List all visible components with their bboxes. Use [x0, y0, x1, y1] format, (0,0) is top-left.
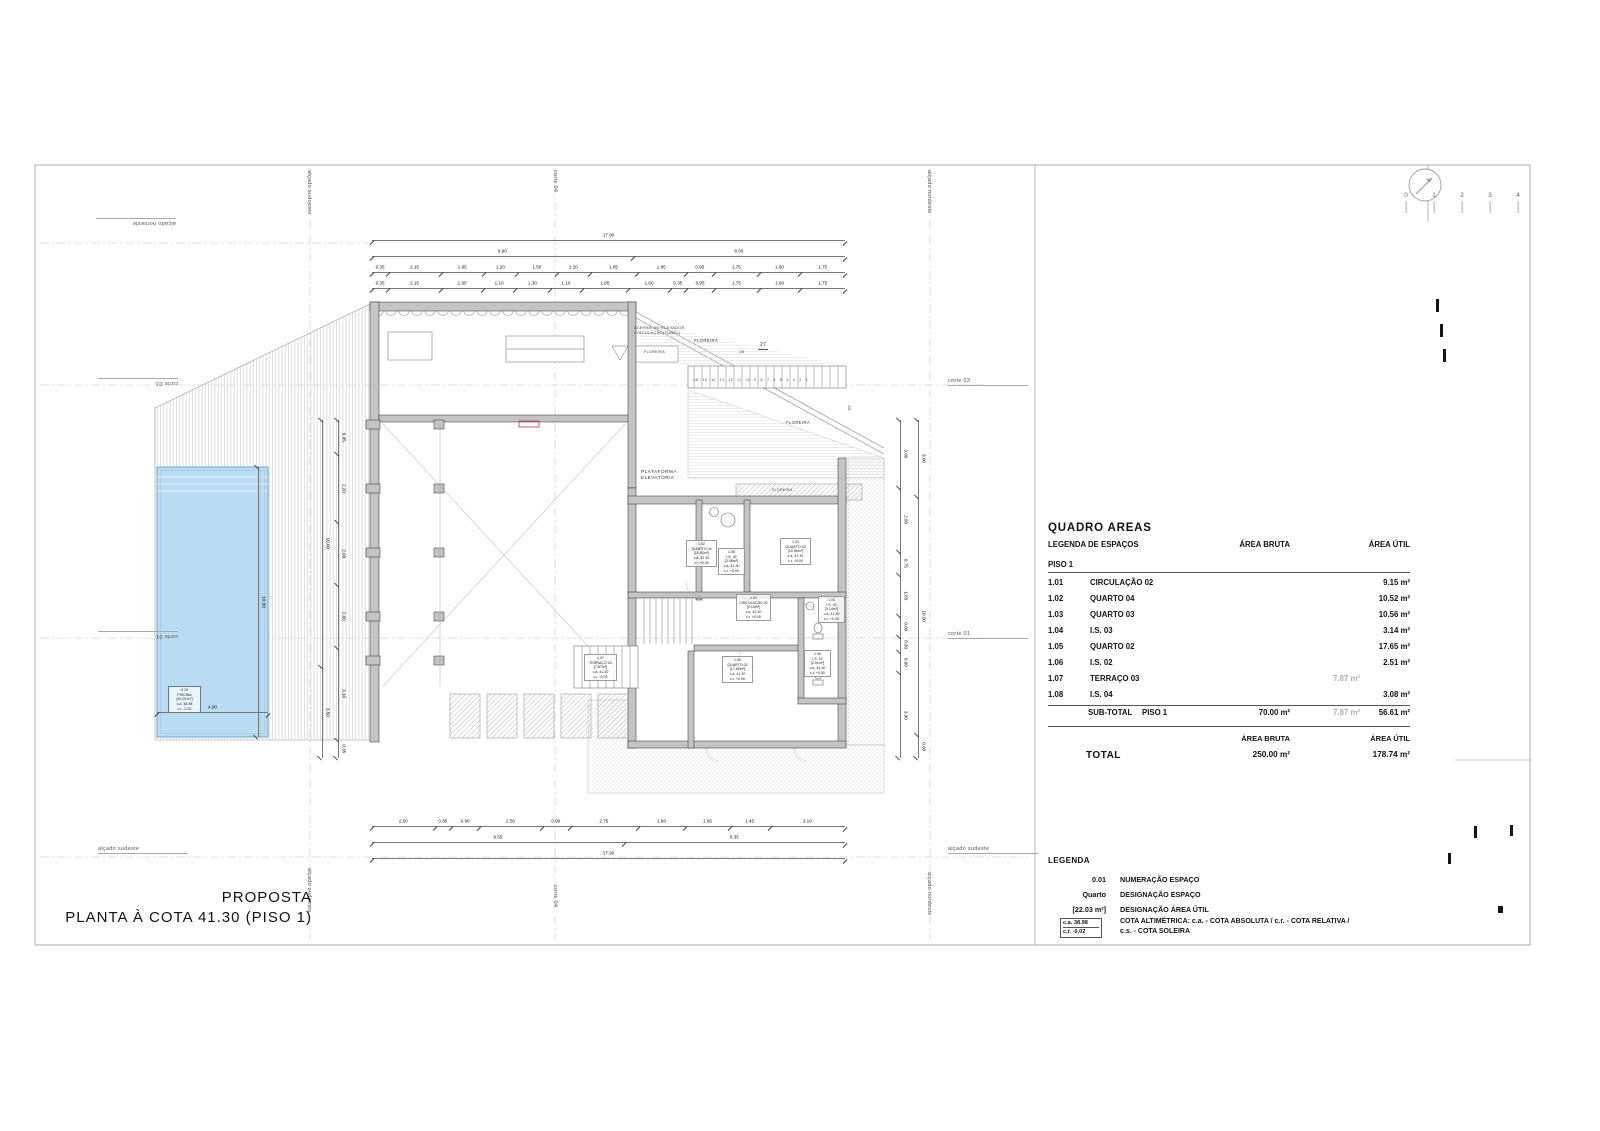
- cell-num: 1.06: [1048, 658, 1090, 667]
- cell-num: 1.04: [1048, 626, 1090, 635]
- dim-segment: 2.20: [338, 454, 344, 522]
- tread-depth-label-1: .25: [738, 349, 745, 354]
- floreira-label-4: FLOREIRA: [772, 488, 793, 493]
- room-label-quarto04: 1.02 QUARTO 04 [10.52m²] c.a. 41.30 c.r.…: [686, 540, 717, 567]
- dim-segment: 1.75: [714, 283, 759, 289]
- subtotal-floor: PISO 1: [1142, 708, 1167, 717]
- dim-chain-top-halves: 9.908.00: [372, 249, 845, 257]
- dim-segment: 1.10: [483, 283, 514, 289]
- dim-segment: 3.50: [322, 667, 328, 758]
- cell-num: 1.02: [1048, 594, 1090, 603]
- interior-stair: [644, 598, 692, 644]
- legend-key: Quarto: [1048, 890, 1106, 899]
- table-row: 1.04 I.S. 03 3.14 m²: [1048, 622, 1410, 638]
- table-row: 1.02 QUARTO 04 10.52 m²: [1048, 590, 1410, 606]
- cell-label: QUARTO 02: [1090, 642, 1208, 651]
- cell-num: 1.08: [1048, 690, 1090, 699]
- dim-chain-bottom-overall: 17.90: [372, 851, 845, 859]
- areas-table-header: LEGENDA DE ESPAÇOS ÁREA BRUTA ÁREA ÚTIL: [1048, 540, 1410, 552]
- dim-segment: 0.60: [900, 616, 906, 637]
- table-row: 1.05 QUARTO 02 17.65 m²: [1048, 638, 1410, 654]
- col-header-espacos: LEGENDA DE ESPAÇOS: [1048, 540, 1139, 549]
- dim-segment: 17.90: [372, 853, 845, 859]
- dim-segment: 0.30: [900, 637, 906, 652]
- cell-util: 3.08 m²: [1360, 690, 1410, 699]
- col-header-util: ÁREA ÚTIL: [1369, 540, 1410, 549]
- legend-desc: NUMERAÇÃO ESPAÇO: [1120, 875, 1418, 884]
- dim-segment: 10.00: [258, 467, 264, 737]
- dim-chain-top-segments-2: 0.352.151.651.101.301.101.851.600.350.95…: [372, 281, 845, 289]
- subtotal-row: SUB-TOTAL PISO 1 70.00 m² 7.87 m² 56.61 …: [1048, 708, 1410, 722]
- table-row: 1.03 QUARTO 03 10.56 m²: [1048, 606, 1410, 622]
- cell-label: I.S. 03: [1090, 626, 1208, 635]
- dim-segment: 0.90: [542, 821, 570, 827]
- cell-util: 10.56 m²: [1360, 610, 1410, 619]
- edge-label-nordeste-bottom: alçado nordeste: [926, 872, 932, 916]
- dim-segment: 1.65: [441, 283, 484, 289]
- dim-chain-top-overall: 17.90: [372, 233, 845, 241]
- edge-label-sudoeste-top: alçado sudoeste: [306, 170, 312, 215]
- stair-riser-count: 27: [758, 342, 768, 350]
- scale-tick: [1490, 201, 1491, 213]
- dim-segment: 1.80: [638, 821, 686, 827]
- room-label-is02: 1.06 I.S. 02 [2.51m²] c.a. 41.30 c.r. +0…: [804, 650, 831, 677]
- cell-label: QUARTO 04: [1090, 594, 1208, 603]
- plataforma-label: PLATAFORMA ELEVATÓRIA: [641, 470, 677, 482]
- table-row: 1.06 I.S. 02 2.51 m²: [1048, 654, 1410, 670]
- dim-segment: 0.35: [670, 283, 686, 289]
- dim-segment: 1.85: [582, 283, 629, 289]
- cota-absoluta-sample: c.a. 38.98: [1063, 919, 1099, 928]
- total-util: 178.74 m²: [1373, 750, 1410, 759]
- tread-depth-label-2: .25: [847, 404, 852, 411]
- dim-segment: 0.35: [435, 821, 451, 827]
- dim-chain-right-outer: 3.0010.000.60: [918, 420, 926, 758]
- dim-segment: 1.75: [800, 267, 845, 273]
- dim-segment: 1.60: [628, 283, 670, 289]
- dim-segment: 0.35: [372, 283, 388, 289]
- room-label-is03: 1.04 I.S. 03 [3.14m²] c.a. 41.30 c.r. +0…: [818, 596, 845, 623]
- room-label-circulacao02: 1.01 CIRCULAÇÃO 02 [9.15m²] c.a. 41.30 c…: [736, 594, 771, 621]
- dim-segment: 0.35: [338, 740, 344, 758]
- fold-marks: [1436, 299, 1513, 913]
- cota-description: COTA ALTIMÉTRICA: c.a. - COTA ABSOLUTA /…: [1120, 917, 1349, 937]
- floor-plan-svg: [0, 0, 1600, 1131]
- dim-segment: 8.35: [624, 837, 845, 843]
- exterior-stair: [688, 366, 846, 388]
- cell-num: 1.05: [1048, 642, 1090, 651]
- scale-tick: [1434, 201, 1435, 213]
- cell-label: QUARTO 03: [1090, 610, 1208, 619]
- acesso-elevador-label: ACESSO AO ELEVADOR CIRCULAÇÃO(TÚNEL): [634, 326, 685, 336]
- cell-gray: 7.87 m²: [1290, 674, 1360, 683]
- edge-label-nordeste-top: alçado nordeste: [926, 170, 932, 214]
- dim-segment: 2.80: [900, 488, 906, 552]
- dim-segment: 10.00: [322, 420, 328, 667]
- edge-label-corte04-bottom: corte 04: [552, 885, 558, 907]
- legend-desc: DESIGNAÇÃO ÁREA ÚTIL: [1120, 905, 1418, 914]
- legend-row: Quarto DESIGNAÇÃO ESPAÇO: [1048, 887, 1418, 902]
- cell-util: 10.52 m²: [1360, 594, 1410, 603]
- cell-util: 3.14 m²: [1360, 626, 1410, 635]
- legend-key: 0.01: [1048, 875, 1106, 884]
- drawing-title-proposta: PROPOSTA: [222, 889, 312, 906]
- dim-segment: 2.75: [570, 821, 638, 827]
- dim-segment: 0.60: [918, 735, 924, 758]
- dim-segment: 10.00: [918, 497, 924, 735]
- room-label-terraco03: 1.07 TERRAÇO 03 [7.87m²] c.a. 41.30 c.r.…: [584, 654, 617, 681]
- legend-desc: DESIGNAÇÃO ESPAÇO: [1120, 890, 1418, 899]
- subtotal-label: SUB-TOTAL: [1088, 708, 1132, 717]
- subtotal-bruta: 70.00 m²: [1259, 708, 1290, 717]
- legend-row: 0.01 NUMERAÇÃO ESPAÇO: [1048, 872, 1418, 887]
- cell-label: CIRCULAÇÃO 02: [1090, 578, 1208, 587]
- dim-segment: 1.65: [685, 821, 729, 827]
- dim-segment: 1.10: [550, 283, 581, 289]
- dim-segment: 0.95: [338, 420, 344, 454]
- drawing-title-planta: PLANTA À COTA 41.30 (PISO 1): [65, 909, 312, 926]
- floreira-label-1: FLOREIRA: [694, 338, 718, 343]
- dim-chain-right-inner: 3.002.800.751.650.600.300.603.90: [900, 420, 908, 758]
- table-divider: [1048, 572, 1410, 573]
- pavement-slabs: [450, 694, 628, 738]
- rooflight-details: [388, 332, 628, 362]
- total-header: ÁREA BRUTA ÁREA ÚTIL: [1048, 734, 1410, 746]
- dim-chain-left-inner: 0.952.202.002.003.100.35: [338, 420, 346, 758]
- stair-tread-numbers: 16 15 14 13 12 11 10 9 8 7 6 5 4 3 2 1: [694, 378, 844, 382]
- dim-segment: 3.00: [918, 420, 924, 497]
- dim-chain-top-segments-1: 0.352.151.651.201.501.201.851.950.951.75…: [372, 265, 845, 273]
- table-divider: [1048, 726, 1410, 727]
- dim-chain-pool-height: 10.00: [258, 467, 266, 737]
- dim-segment: 9.55: [372, 837, 624, 843]
- scale-number: 1: [1432, 192, 1436, 199]
- dim-segment: 1.20: [484, 267, 517, 273]
- cell-util: 17.65 m²: [1360, 642, 1410, 651]
- scale-number: 4: [1516, 192, 1520, 199]
- legend-title: LEGENDA: [1048, 856, 1090, 865]
- areas-rows: 1.01 CIRCULAÇÃO 02 9.15 m² 1.02 QUARTO 0…: [1048, 574, 1410, 702]
- edge-label-corte04-top: corte 04: [552, 170, 558, 192]
- room-label-is04: 1.08 I.S. 04 [3.08m²] c.a. 41.30 c.r. +0…: [718, 548, 745, 575]
- floor-heading: PISO 1: [1048, 560, 1073, 569]
- edge-label-corte01-left: corte 01: [98, 631, 178, 639]
- room-label-quarto02: 1.05 QUARTO 02 [17.65m²] c.a. 41.30 c.r.…: [722, 656, 753, 683]
- total-row: TOTAL 250.00 m² 178.74 m²: [1048, 750, 1410, 764]
- dim-segment: 1.60: [759, 283, 801, 289]
- dim-chain-pool-width: 4.00: [157, 705, 268, 713]
- dim-segment: 1.95: [637, 267, 686, 273]
- subtotal-gray: 7.87 m²: [1333, 708, 1360, 717]
- legend-row: [22.03 m²] DESIGNAÇÃO ÁREA ÚTIL: [1048, 902, 1418, 917]
- cota-sample-box: c.a. 38.98 c.r. -0.02: [1060, 918, 1102, 938]
- dim-segment: 1.60: [759, 267, 801, 273]
- dim-segment: 9.90: [372, 251, 633, 257]
- edge-label-corte01-right: corte 01: [948, 631, 1028, 639]
- total-col-bruta: ÁREA BRUTA: [1241, 734, 1290, 743]
- dim-segment: 3.10: [338, 648, 344, 740]
- table-divider: [1048, 705, 1410, 706]
- scale-tick: [1406, 201, 1407, 213]
- dim-segment: 0.35: [372, 267, 388, 273]
- cell-num: 1.07: [1048, 674, 1090, 683]
- table-row: 1.08 I.S. 04 3.08 m²: [1048, 686, 1410, 702]
- dim-segment: 0.60: [900, 652, 906, 673]
- dim-segment: 0.75: [900, 552, 906, 576]
- scale-number: 2: [1460, 192, 1464, 199]
- dim-segment: 1.85: [590, 267, 637, 273]
- table-row: 1.07 TERRAÇO 03 7.87 m²: [1048, 670, 1410, 686]
- dim-segment: 3.90: [900, 673, 906, 758]
- cota-relativa-sample: c.r. -0.02: [1063, 928, 1099, 936]
- legend-rows: 0.01 NUMERAÇÃO ESPAÇO Quarto DESIGNAÇÃO …: [1048, 872, 1418, 917]
- edge-label-corte03-right: corte 03: [948, 378, 1028, 386]
- dim-segment: 1.65: [900, 575, 906, 616]
- dim-segment: 1.75: [800, 283, 845, 289]
- cell-util: 2.51 m²: [1360, 658, 1410, 667]
- scale-bar: 01234: [1406, 192, 1518, 218]
- total-col-util: ÁREA ÚTIL: [1370, 734, 1410, 743]
- room-label-quarto03: 1.03 QUARTO 03 [10.56m²] c.a. 41.30 c.r.…: [780, 538, 811, 565]
- dim-segment: 3.00: [900, 420, 906, 488]
- subtotal-util: 56.61 m²: [1379, 708, 1410, 717]
- edge-label-noroeste: alçado noroeste: [96, 218, 176, 226]
- cell-label: I.S. 04: [1090, 690, 1208, 699]
- dim-chain-left-outer: 10.003.50: [322, 420, 330, 758]
- dim-segment: 8.00: [633, 251, 845, 257]
- dim-segment: 2.50: [479, 821, 542, 827]
- table-row: 1.01 CIRCULAÇÃO 02 9.15 m²: [1048, 574, 1410, 590]
- floreira-label-3: FLOREIRA: [786, 420, 810, 425]
- cell-num: 1.03: [1048, 610, 1090, 619]
- floreira-label-2: FLOREIRA: [644, 350, 665, 355]
- dim-chain-bottom-halves: 9.558.35: [372, 835, 845, 843]
- dim-segment: 4.00: [157, 707, 268, 713]
- dim-segment: 0.95: [686, 267, 714, 273]
- cell-label: TERRAÇO 03: [1090, 674, 1208, 683]
- drawing-sheet: alçado noroeste corte 04 alçado sudoeste…: [0, 0, 1600, 1131]
- dim-segment: 1.75: [714, 267, 759, 273]
- dim-segment: 2.00: [338, 585, 344, 648]
- legend-key: [22.03 m²]: [1048, 905, 1106, 914]
- scale-number: 0: [1404, 192, 1408, 199]
- dim-segment: 2.15: [388, 283, 441, 289]
- dim-segment: 17.90: [372, 235, 845, 241]
- dim-segment: 2.50: [372, 821, 435, 827]
- cell-label: I.S. 02: [1090, 658, 1208, 667]
- dim-segment: 1.45: [730, 821, 770, 827]
- dim-segment: 0.95: [686, 283, 714, 289]
- scale-number: 3: [1488, 192, 1492, 199]
- scale-tick: [1462, 201, 1463, 213]
- edge-label-corte03-left: corte 03: [98, 378, 178, 386]
- dim-segment: 2.00: [338, 522, 344, 585]
- dim-segment: 0.90: [451, 821, 479, 827]
- dim-chain-bottom-segments: 2.500.350.902.500.902.751.801.651.453.10: [372, 819, 845, 827]
- total-label: TOTAL: [1086, 750, 1121, 761]
- edge-label-sudeste-right: alçado sudeste: [948, 846, 1038, 854]
- col-header-bruta: ÁREA BRUTA: [1239, 540, 1290, 549]
- dim-segment: 2.15: [388, 267, 441, 273]
- scale-tick: [1518, 201, 1519, 213]
- dim-segment: 1.50: [517, 267, 557, 273]
- dim-segment: 3.10: [770, 821, 845, 827]
- dim-segment: 1.30: [515, 283, 550, 289]
- dim-segment: 1.65: [441, 267, 484, 273]
- dim-segment: 1.20: [557, 267, 590, 273]
- areas-table-title: QUADRO AREAS: [1048, 522, 1152, 534]
- edge-label-sudeste-left: alçado sudeste: [98, 846, 188, 854]
- cell-num: 1.01: [1048, 578, 1090, 587]
- cell-util: 9.15 m²: [1360, 578, 1410, 587]
- total-bruta: 250.00 m²: [1253, 750, 1290, 759]
